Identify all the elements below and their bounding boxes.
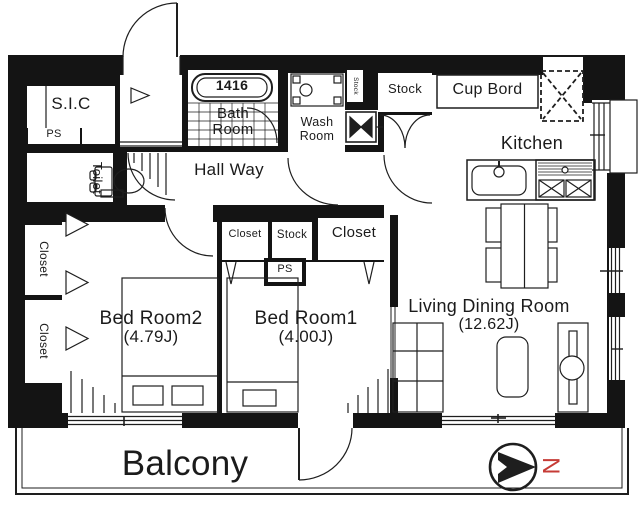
shelf-icon [393,323,443,412]
closet-mid-large-label: Closet [318,225,390,241]
kitchen-counter-icon [467,160,595,200]
washroom-label: Wash Room [293,116,341,143]
closet-mid-small-label: Closet [222,229,268,241]
dining-set-icon [486,204,557,288]
bay-window [590,100,637,173]
genkan-step [120,88,182,146]
hallway-label: Hall Way [169,161,289,179]
washer-pan-icon [346,112,383,142]
vanity-sink-icon [291,74,343,106]
bathtub-size-label: 1416 [192,78,272,93]
stock-double-doors [380,115,430,148]
stock-small-label: Stock [351,71,359,101]
floor-plan: S.I.C PS Toilet Closet Closet 1416 Bath … [0,0,640,510]
closet-left-bottom-label: Closet [36,306,50,376]
ps-top-label: PS [28,129,80,141]
ps-mid-label: PS [268,264,302,276]
cupboard-label: Cup Bord [437,81,538,98]
bathroom-label: Bath Room [209,106,257,138]
compass-icon [490,444,536,490]
living-label: Living Dining Room [389,297,589,316]
entrance-door [123,3,180,75]
tv-board-icon [558,323,588,412]
bedroom1-window-shade [348,369,388,413]
bedroom1-size: (4.00J) [231,328,381,346]
ldk-door [384,155,432,203]
stock-top-label: Stock [378,82,432,96]
compass-north-label: N [536,452,564,480]
bedroom2-door [165,208,213,256]
bedroom2-window-shade [71,371,115,413]
fixture-layer [0,0,640,510]
toilet-door [128,153,175,200]
fridge-space-icon [540,56,585,121]
stock-mid-label: Stock [272,229,312,241]
balcony-door [299,428,352,480]
bedroom2-size: (4.79J) [76,328,226,346]
closet-left-top-label: Closet [36,224,50,294]
toilet-label: Toilet [88,148,104,208]
washroom-door [288,158,338,205]
sic-label: S.I.C [27,95,115,113]
living-size: (12.62J) [389,316,589,333]
low-table-icon [497,337,528,397]
kitchen-label: Kitchen [472,134,592,153]
balcony-label: Balcony [85,445,285,483]
